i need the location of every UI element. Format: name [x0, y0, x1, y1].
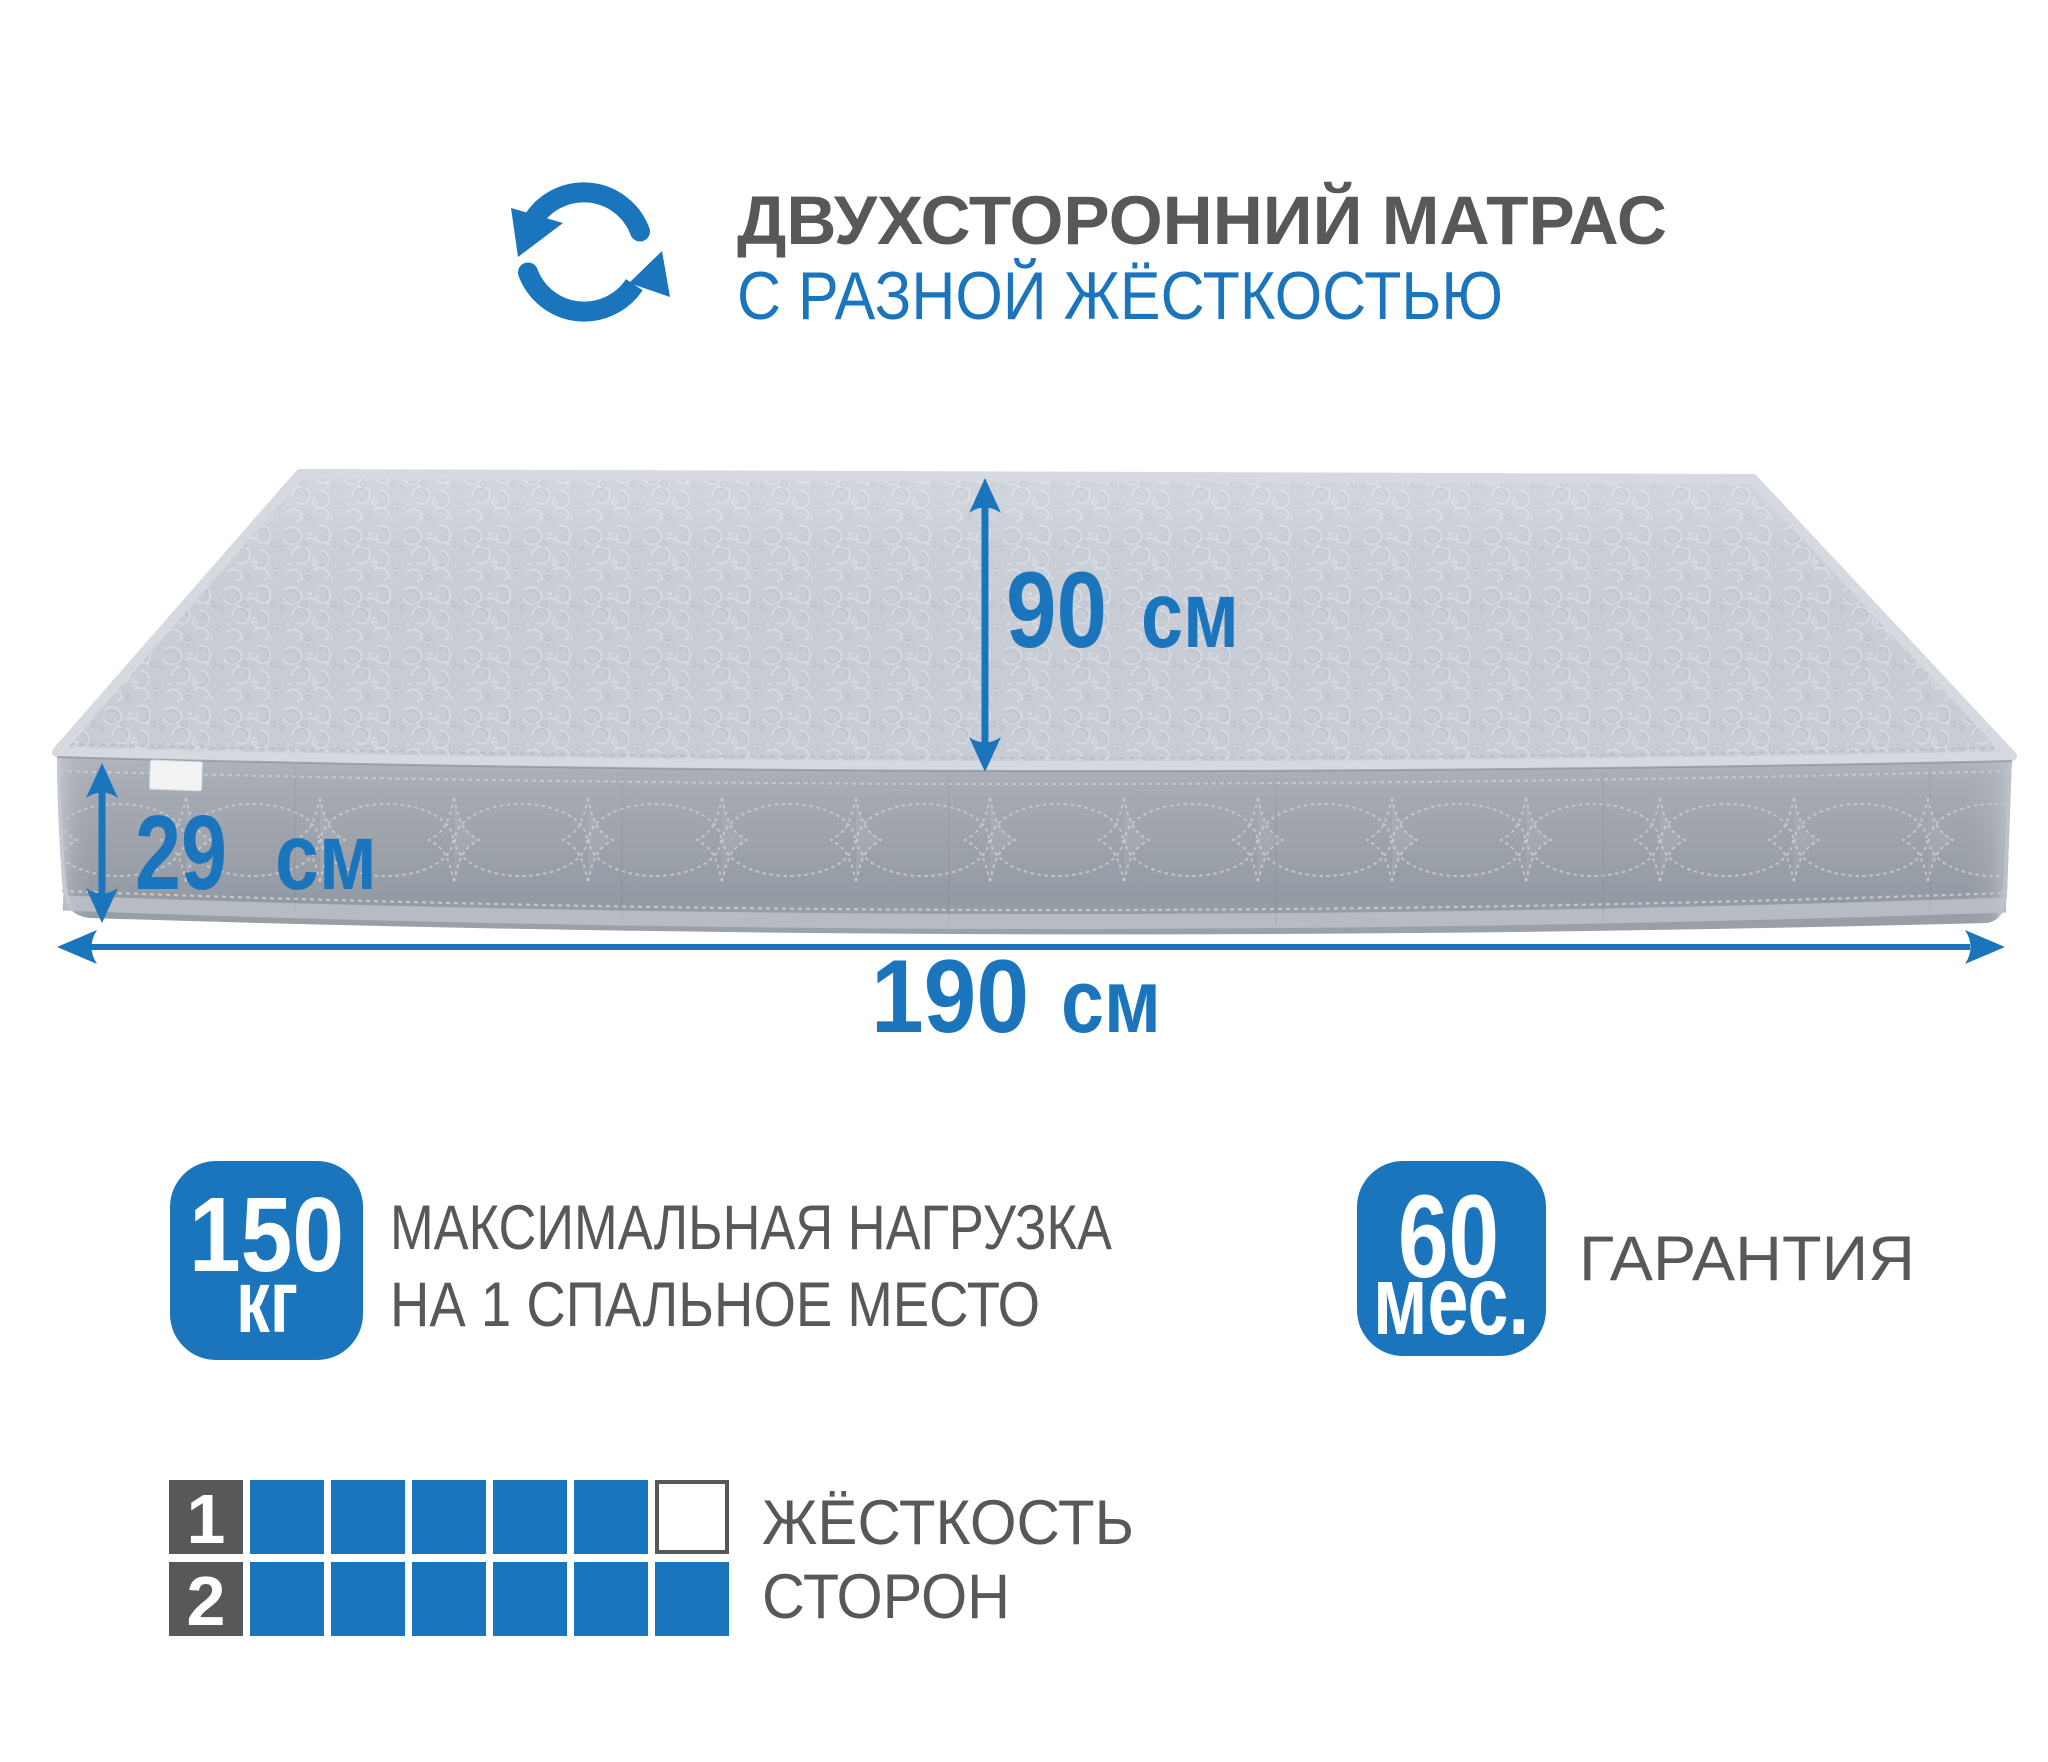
- svg-text:МАКСИМАЛЬНАЯ НАГРУЗКА: МАКСИМАЛЬНАЯ НАГРУЗКА: [390, 1193, 1112, 1263]
- svg-text:ДВУХСТОРОННИЙ МАТРАС: ДВУХСТОРОННИЙ МАТРАС: [737, 181, 1667, 259]
- svg-text:2: 2: [187, 1562, 226, 1640]
- svg-text:см: см: [275, 804, 377, 910]
- svg-text:СТОРОН: СТОРОН: [762, 1562, 1010, 1632]
- svg-text:мес.: мес.: [1373, 1245, 1529, 1355]
- svg-text:29: 29: [135, 794, 227, 912]
- svg-text:1: 1: [187, 1480, 226, 1558]
- svg-text:ГАРАНТИЯ: ГАРАНТИЯ: [1579, 1224, 1915, 1294]
- svg-text:кг: кг: [236, 1251, 298, 1351]
- svg-text:90: 90: [1006, 549, 1107, 670]
- svg-text:С РАЗНОЙ ЖЁСТКОСТЬЮ: С РАЗНОЙ ЖЁСТКОСТЬЮ: [737, 257, 1503, 334]
- svg-text:НА 1 СПАЛЬНОЕ МЕСТО: НА 1 СПАЛЬНОЕ МЕСТО: [390, 1270, 1040, 1340]
- svg-text:см: см: [1141, 562, 1239, 668]
- svg-text:ЖЁСТКОСТЬ: ЖЁСТКОСТЬ: [762, 1488, 1134, 1558]
- svg-text:см: см: [1061, 952, 1161, 1052]
- svg-text:190: 190: [871, 939, 1029, 1055]
